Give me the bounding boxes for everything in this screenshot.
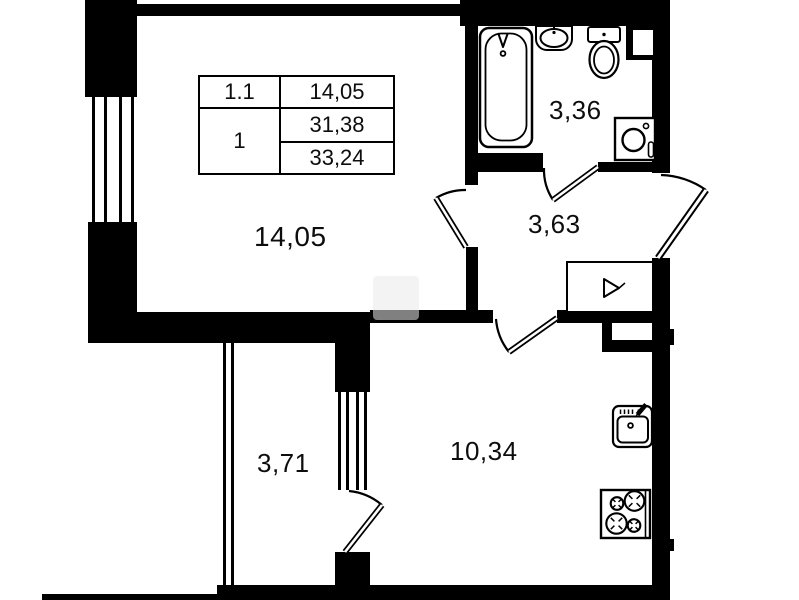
wall-segment [335,552,370,585]
wall-segment [88,312,345,343]
toilet-icon [588,27,620,78]
room-area-label-kitchen: 10,34 [450,436,518,467]
wall-segment [85,0,137,97]
electric-panel-icon [567,262,653,312]
bathtub-icon [480,28,532,147]
door-entrance [658,175,706,258]
floor-plan: 1.1 14,05 1 31,38 33,24 14,05 3,36 3,63 … [0,0,799,600]
wall-segment [465,16,478,160]
door-living [436,190,466,247]
room-area-label-corridor: 3,71 [257,448,310,479]
wall-segment [465,153,543,172]
wall-segment [466,247,478,313]
wall-segment [598,162,655,172]
wall-segment [137,4,466,16]
area-table-value-cell: 33,24 [279,143,393,173]
room-area-label-bathroom: 3,36 [549,95,602,126]
partition-line [338,392,341,490]
room-area-label-hallway: 3,63 [528,209,581,240]
window-icon [104,97,107,222]
wall-tick [670,329,674,345]
kitchen-sink-icon [613,405,652,448]
wall-segment [602,340,653,352]
window-icon [119,97,122,222]
wall-tick [670,539,674,551]
partition-line [356,392,359,490]
window-icon [92,97,95,222]
door-corridor [345,491,382,552]
wall-segment [652,258,670,600]
wall-segment [335,312,370,392]
wall-segment [217,585,670,600]
door-kitchen [496,318,557,352]
partition-line [364,392,367,490]
wall-segment [42,594,218,600]
area-table-unit-cell: 1.1 [200,77,279,109]
partition-line [346,392,349,490]
thin-wall-line [223,343,226,594]
vent-shaft-niche [633,30,653,55]
washing-machine-icon [615,118,655,160]
stove-icon [601,490,650,538]
window-icon [131,97,134,222]
thin-wall-line [231,343,234,594]
watermark [373,276,419,320]
area-table-value-cell: 14,05 [279,77,393,109]
area-table-unit-cell: 1 [200,109,279,173]
wall-segment [460,0,670,26]
door-bathroom [544,167,598,200]
area-table: 1.1 14,05 1 31,38 33,24 [198,75,395,175]
area-table-value-cell: 31,38 [279,109,393,143]
room-area-label-living: 14,05 [254,221,327,253]
wall-segment [465,172,478,185]
